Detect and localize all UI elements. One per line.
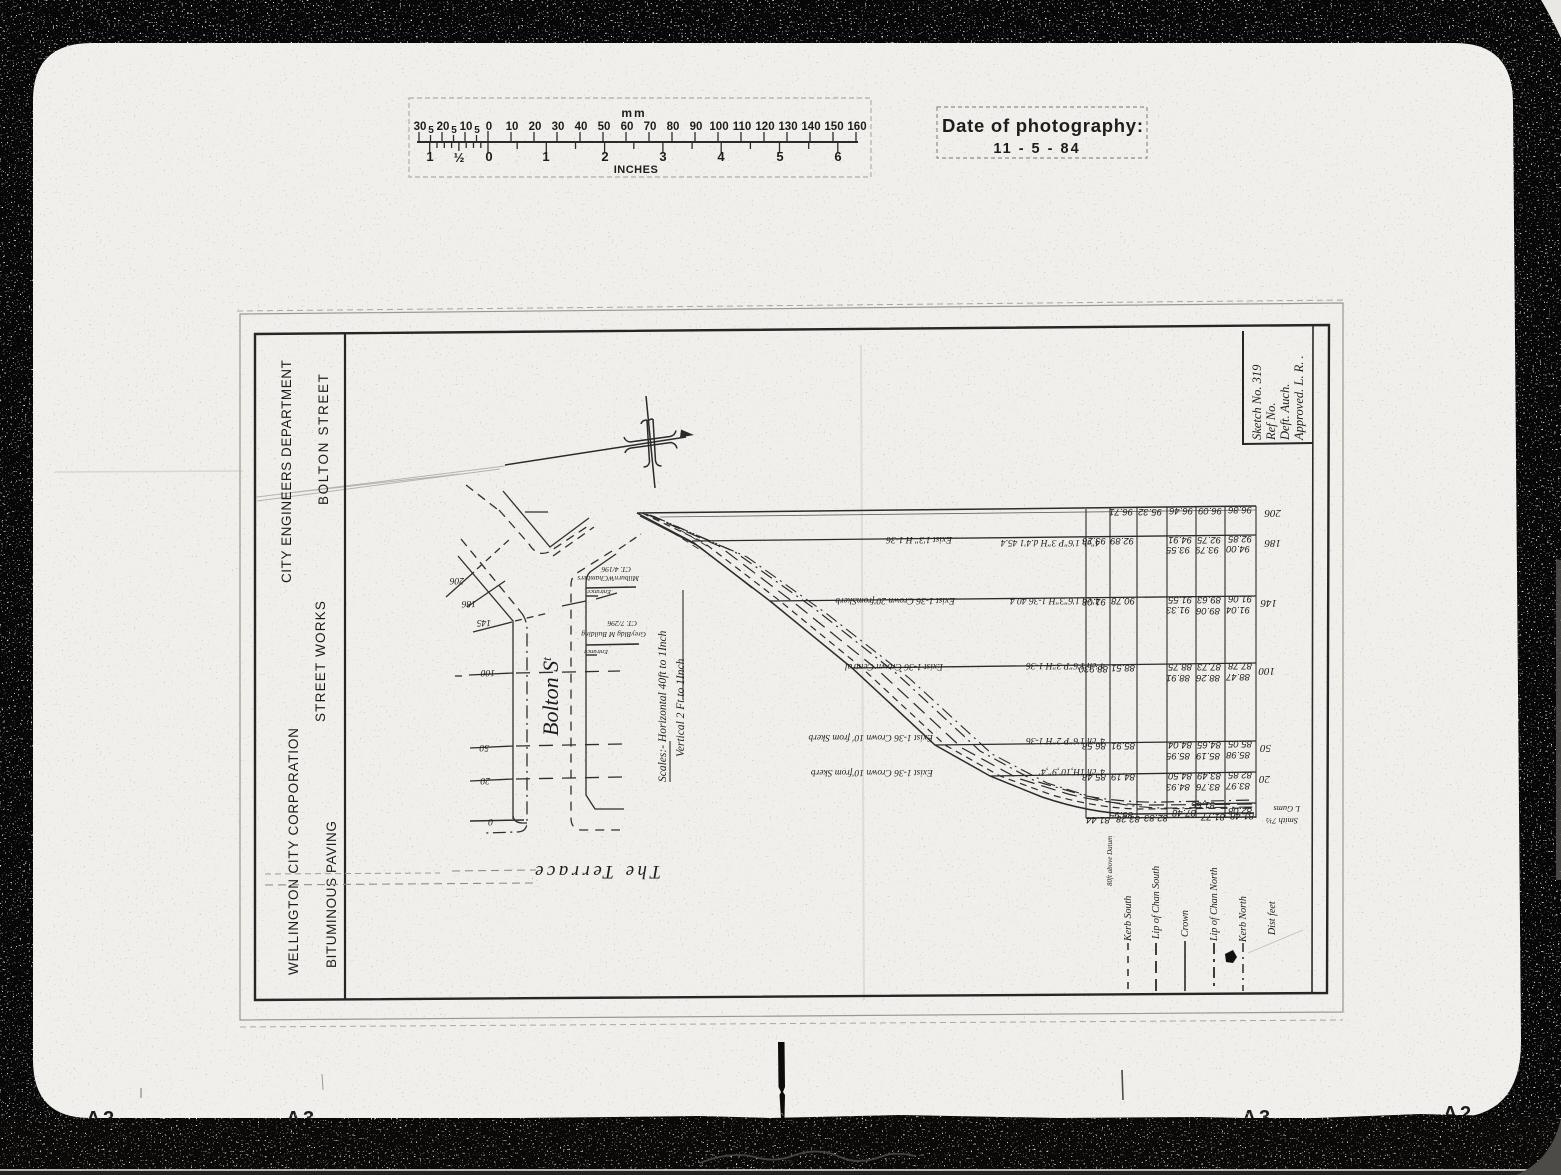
- svg-text:93.79: 93.79: [1195, 544, 1219, 555]
- svg-text:100: 100: [481, 667, 496, 677]
- svg-text:146: 146: [1260, 597, 1277, 609]
- svg-text:85.19: 85.19: [1196, 750, 1220, 761]
- svg-text:91.55: 91.55: [1168, 594, 1192, 605]
- svg-text:83.97: 83.97: [1226, 780, 1250, 791]
- svg-text:110: 110: [733, 121, 752, 133]
- svg-text:89.06: 89.06: [1196, 605, 1220, 616]
- svg-text:5: 5: [776, 149, 783, 164]
- svg-text:88.47: 88.47: [1226, 671, 1250, 682]
- svg-text:20: 20: [1259, 773, 1271, 785]
- svg-text:80: 80: [667, 121, 680, 133]
- svg-text:INCHES: INCHES: [614, 164, 659, 176]
- svg-text:130: 130: [778, 121, 797, 133]
- svg-text:80ft above Datum: 80ft above Datum: [1106, 836, 1114, 886]
- svg-text:1: 1: [426, 149, 433, 164]
- svg-text:50: 50: [1260, 742, 1272, 754]
- svg-text:91.08: 91.08: [1082, 596, 1106, 607]
- svg-text:84.65: 84.65: [1197, 739, 1221, 750]
- svg-text:60: 60: [621, 121, 634, 133]
- svg-text:145: 145: [477, 617, 492, 627]
- svg-text:20: 20: [480, 775, 490, 785]
- svg-text:10: 10: [506, 121, 519, 133]
- svg-text:84.19: 84.19: [1111, 771, 1135, 782]
- svg-text:Entrance: Entrance: [587, 588, 612, 595]
- svg-text:CITY ENGINEERS DEPARTMENT: CITY ENGINEERS DEPARTMENT: [279, 359, 294, 583]
- svg-text:120: 120: [755, 121, 774, 133]
- svg-text:88.51: 88.51: [1111, 662, 1135, 673]
- svg-text:82.83: 82.83: [1144, 812, 1168, 823]
- svg-text:96.46: 96.46: [1169, 505, 1193, 516]
- svg-text:5: 5: [428, 125, 434, 136]
- svg-text:Entrance: Entrance: [584, 648, 609, 655]
- svg-text:186: 186: [462, 598, 477, 608]
- svg-text:96.86: 96.86: [1228, 504, 1252, 515]
- svg-text:82.85: 82.85: [1228, 769, 1252, 780]
- svg-text:90.78: 90.78: [1111, 595, 1135, 606]
- svg-text:1: 1: [542, 149, 549, 164]
- svg-text:92.89: 92.89: [1110, 535, 1134, 546]
- svg-text:Date of photography:: Date of photography:: [942, 115, 1143, 136]
- svg-text:83.76: 83.76: [1196, 781, 1220, 792]
- svg-text:4: 4: [717, 149, 725, 164]
- svg-text:88.930: 88.930: [1078, 663, 1108, 674]
- svg-text:Kerb North: Kerb North: [1238, 896, 1249, 943]
- svg-text:94.00: 94.00: [1226, 543, 1250, 554]
- svg-text:206: 206: [450, 575, 465, 585]
- svg-text:WELLINGTON CITY CORPORATION: WELLINGTON CITY CORPORATION: [286, 727, 301, 975]
- svg-text:Bolton St: Bolton St: [538, 657, 563, 736]
- svg-text:Exist 1-36 Crown 10' from Sk: Exist 1-36 Crown 10' from Skerb: [808, 732, 934, 743]
- svg-text:STREET WORKS: STREET WORKS: [313, 600, 328, 722]
- svg-text:150: 150: [824, 121, 843, 133]
- svg-text:Exist 1-36 Crown Central: Exist 1-36 Crown Central: [845, 661, 944, 671]
- svg-text:3: 3: [659, 149, 666, 164]
- svg-text:91.33: 91.33: [1166, 604, 1190, 615]
- svg-text:86.58: 86.58: [1082, 740, 1106, 751]
- svg-text:81.48: 81.48: [1230, 810, 1254, 821]
- svg-text:83.28: 83.28: [1116, 813, 1140, 824]
- svg-text:20: 20: [529, 121, 542, 133]
- svg-text:50: 50: [479, 742, 489, 752]
- svg-text:81.44: 81.44: [1086, 814, 1110, 825]
- svg-text:Dist feet: Dist feet: [1267, 901, 1278, 936]
- svg-text:Sketch No. 319: Sketch No. 319: [1250, 364, 1264, 440]
- svg-text:Exist 1'3" H 1-36: Exist 1'3" H 1-36: [886, 534, 953, 544]
- svg-text:81.77: 81.77: [1201, 811, 1225, 822]
- svg-text:84.04: 84.04: [1168, 739, 1192, 750]
- svg-text:½: ½: [454, 150, 465, 165]
- svg-text:92.75: 92.75: [1197, 534, 1221, 545]
- svg-text:85.98: 85.98: [1226, 749, 1250, 760]
- svg-text:94.91: 94.91: [1168, 534, 1192, 545]
- svg-text:83.49: 83.49: [1197, 770, 1221, 781]
- svg-text:Ref No.: Ref No.: [1264, 403, 1278, 442]
- svg-text:96.09: 96.09: [1198, 505, 1222, 516]
- svg-text:85.48: 85.48: [1082, 771, 1106, 782]
- svg-text:Vertical 2 Ft to 1Inch: Vertical 2 Ft to 1Inch: [675, 658, 687, 757]
- svg-text:93.55: 93.55: [1166, 544, 1190, 555]
- svg-text:Kerb South: Kerb South: [1123, 896, 1134, 942]
- svg-text:0: 0: [488, 816, 493, 826]
- svg-text:Scales:- Horizontal 40ft to: Scales:- Horizontal 40ft to 1Inch: [657, 630, 669, 782]
- svg-text:20: 20: [437, 121, 450, 133]
- svg-text:Crown: Crown: [1180, 910, 1191, 937]
- svg-text:96.71: 96.71: [1109, 506, 1133, 517]
- svg-text:91.06: 91.06: [1228, 593, 1252, 604]
- svg-text:MilburnWChambers: MilburnWChambers: [577, 574, 640, 583]
- svg-text:5: 5: [451, 125, 457, 136]
- svg-text:87.78: 87.78: [1228, 660, 1252, 671]
- svg-text:10: 10: [460, 121, 473, 133]
- svg-text:mm: mm: [621, 106, 646, 120]
- svg-text:186: 186: [1264, 537, 1281, 549]
- svg-text:85.95: 85.95: [1166, 750, 1190, 761]
- svg-text:85.05: 85.05: [1228, 738, 1252, 749]
- svg-text:70: 70: [644, 121, 657, 133]
- svg-text:5: 5: [474, 125, 480, 136]
- svg-text:0: 0: [486, 121, 492, 133]
- svg-text:Approved. L. R. .: Approved. L. R. .: [1292, 355, 1306, 441]
- svg-text:87.73: 87.73: [1197, 661, 1221, 672]
- svg-text:BOLTON STREET: BOLTON STREET: [316, 373, 331, 505]
- svg-text:Smith 7½: Smith 7½: [1265, 816, 1298, 826]
- svg-text:88.75: 88.75: [1168, 661, 1192, 672]
- svg-text:GreyBldg M Building: GreyBldg M Building: [581, 630, 646, 639]
- svg-text:88.91: 88.91: [1166, 672, 1190, 683]
- svg-text:84.93: 84.93: [1166, 781, 1190, 792]
- svg-text:140: 140: [801, 121, 820, 133]
- svg-text:6: 6: [834, 149, 841, 164]
- svg-text:40: 40: [575, 121, 588, 133]
- svg-text:100: 100: [1258, 665, 1275, 677]
- svg-text:The Terrace: The Terrace: [535, 861, 661, 882]
- svg-text:0: 0: [485, 149, 492, 164]
- svg-text:50: 50: [598, 121, 611, 133]
- svg-text:160: 160: [847, 121, 866, 133]
- svg-text:84.50: 84.50: [1168, 770, 1192, 781]
- svg-text:Deft. Auch.: Deft. Auch.: [1278, 384, 1292, 441]
- svg-text:100: 100: [709, 121, 728, 133]
- svg-text:L Gums: L Gums: [1273, 804, 1301, 814]
- svg-text:Exist 1-36 Crown 20'fromSkerb: Exist 1-36 Crown 20'fromSkerb: [835, 595, 956, 606]
- svg-text:88.26: 88.26: [1196, 672, 1220, 683]
- svg-text:30: 30: [414, 121, 427, 133]
- svg-text:85.91: 85.91: [1111, 740, 1135, 751]
- svg-text:206: 206: [1264, 507, 1281, 519]
- svg-text:CT. 4/196: CT. 4/196: [601, 565, 631, 574]
- svg-text:2: 2: [601, 149, 608, 164]
- svg-text:92.85: 92.85: [1228, 533, 1252, 544]
- svg-text:CT. 7/296: CT. 7/296: [607, 619, 637, 628]
- svg-text:11 - 5 - 84: 11 - 5 - 84: [993, 141, 1080, 157]
- svg-text:Lip of Chan South: Lip of Chan South: [1151, 866, 1162, 940]
- svg-text:89.63: 89.63: [1197, 594, 1221, 605]
- svg-text:Exist 1-36 Crown 10'from Ske: Exist 1-36 Crown 10'from Skerb: [811, 767, 934, 778]
- svg-text:93.26: 93.26: [1082, 535, 1106, 546]
- svg-text:Lip of Chan North: Lip of Chan North: [1209, 867, 1220, 942]
- svg-text:91.04: 91.04: [1226, 604, 1250, 615]
- svg-text:87.48: 87.48: [1172, 807, 1196, 818]
- svg-text:30: 30: [552, 121, 565, 133]
- svg-text:95.32: 95.32: [1138, 506, 1162, 517]
- svg-text:BITUMINOUS PAVING: BITUMINOUS PAVING: [324, 820, 339, 968]
- svg-text:90: 90: [690, 121, 703, 133]
